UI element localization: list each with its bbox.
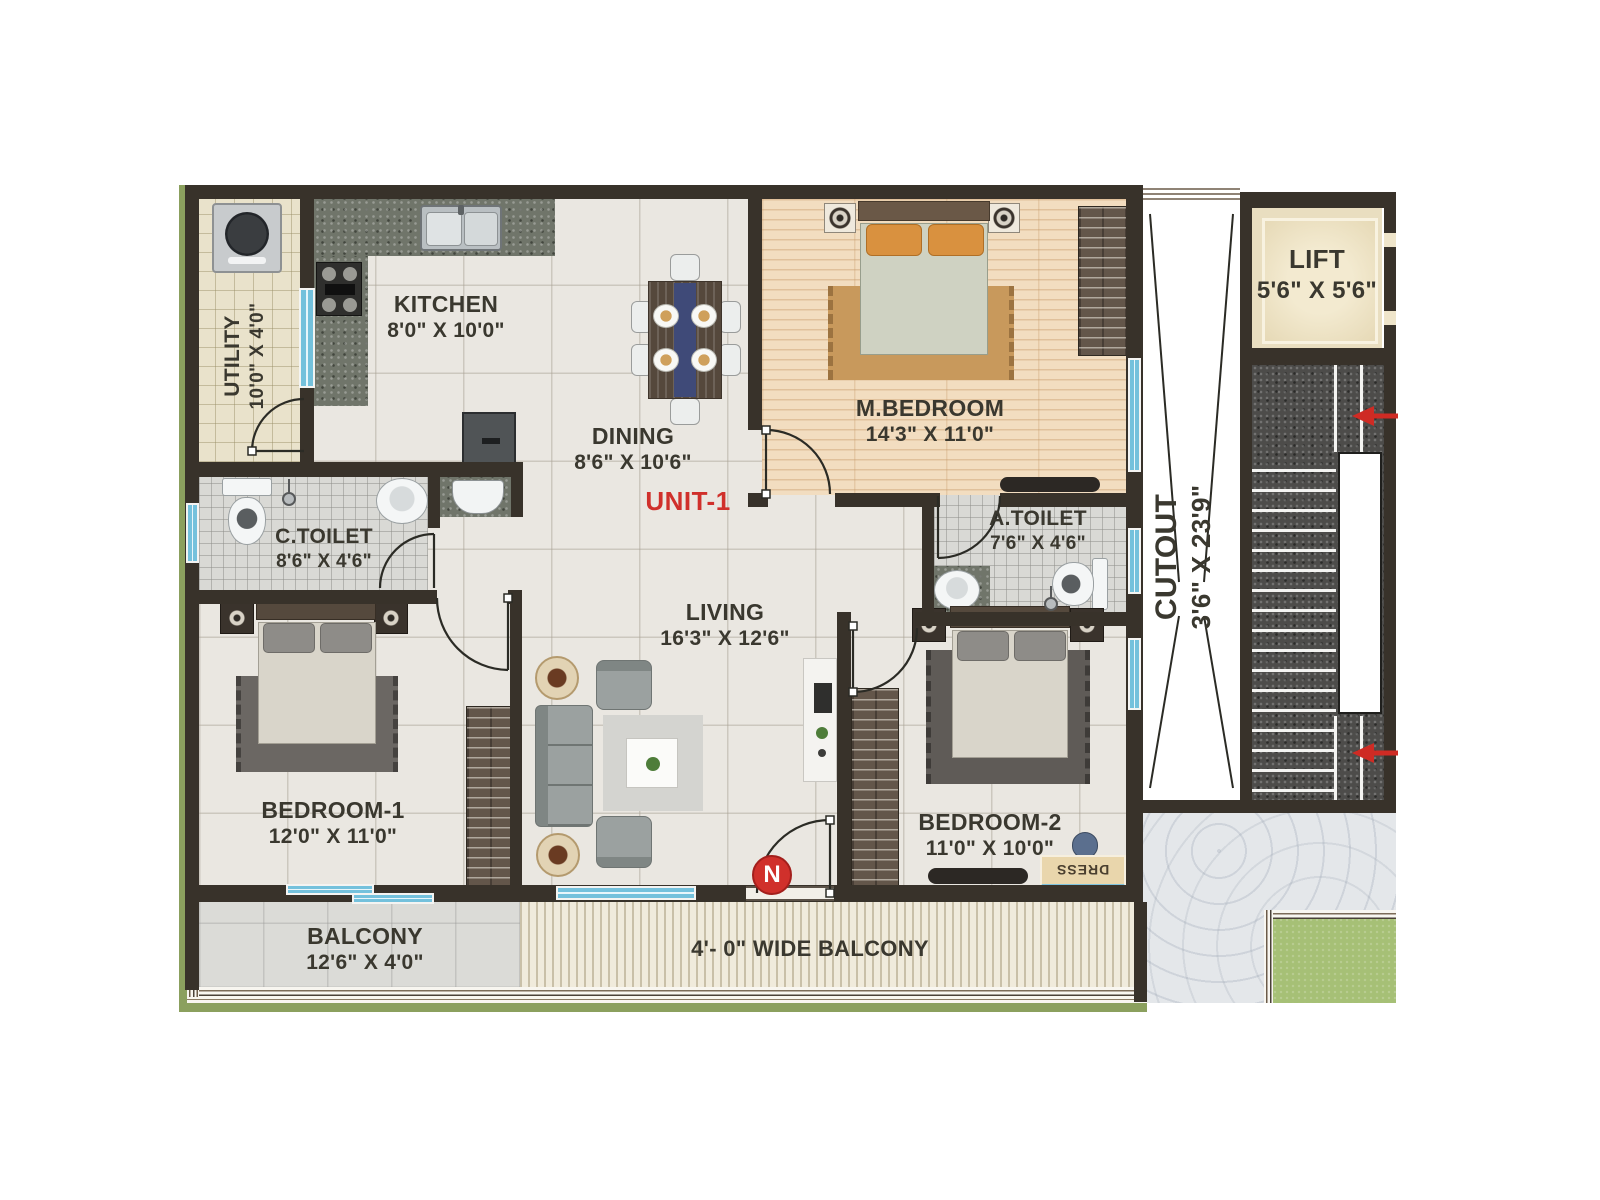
wall-block-bottom xyxy=(1143,800,1396,813)
stair-divider-line xyxy=(1334,716,1337,800)
lamp-icon xyxy=(226,607,248,629)
window-utility xyxy=(299,288,315,388)
pedestal-basin-icon xyxy=(376,478,428,524)
wall-bedroom2-top-b xyxy=(915,612,1126,626)
wall-mbedroom-bottom-c xyxy=(1000,493,1126,507)
wall-nook-right xyxy=(511,462,523,517)
plant-icon xyxy=(816,727,828,739)
wall-top xyxy=(185,185,1143,199)
stair-landing xyxy=(1338,452,1382,714)
room-dims: 11'0" X 10'0" xyxy=(880,836,1100,862)
wall-balcony-post xyxy=(1134,902,1147,1002)
burner xyxy=(343,267,357,281)
edge-green-bottom xyxy=(179,1003,1147,1012)
decor-dot xyxy=(818,749,826,757)
dining-chair xyxy=(670,254,700,281)
stair-divider-line xyxy=(1360,365,1363,452)
lamp-icon xyxy=(829,207,851,229)
north-letter: N xyxy=(763,861,780,888)
side-table xyxy=(535,656,579,700)
north-marker: N xyxy=(752,855,792,895)
pillow xyxy=(1014,631,1066,661)
window-mbedroom xyxy=(1128,358,1141,472)
pillow xyxy=(866,224,922,256)
armchair xyxy=(596,660,652,710)
wall-ctoilet-right xyxy=(428,462,440,528)
tv-unit xyxy=(803,658,837,782)
atoilet-wc-bowl xyxy=(1052,562,1094,606)
room-name: C.TOILET xyxy=(214,524,434,550)
stair-divider-line xyxy=(1334,365,1337,452)
window-living xyxy=(556,886,696,900)
room-label-utility: UTILITY 10'0" X 4'0" xyxy=(220,246,276,466)
room-label-bedroom2: BEDROOM-2 11'0" X 10'0" xyxy=(880,808,1100,862)
room-name: BEDROOM-2 xyxy=(880,808,1100,836)
room-label-attached-toilet: A.TOILET 7'6" X 4'6" xyxy=(928,506,1148,555)
window-bedroom1-b xyxy=(352,893,434,904)
room-label-dining: DINING 8'6" X 10'6" xyxy=(523,422,743,476)
room-dims: 10'0" X 4'0" xyxy=(246,246,269,466)
floor-plan: DRESS xyxy=(0,0,1600,1200)
wall-bedroom1-right xyxy=(510,590,522,902)
wardrobe xyxy=(1078,206,1128,356)
window-bedroom2 xyxy=(1128,638,1141,710)
tv-console xyxy=(1000,477,1100,492)
lamp-icon xyxy=(993,207,1015,229)
armchair xyxy=(596,816,652,868)
wall-left xyxy=(185,185,199,990)
sink-bowl xyxy=(426,212,462,246)
plate-icon xyxy=(653,304,679,328)
room-name: LIVING xyxy=(615,598,835,626)
room-label-living: LIVING 16'3" X 12'6" xyxy=(615,598,835,652)
room-name: 4'- 0" WIDE BALCONY xyxy=(650,936,970,963)
fridge-handle xyxy=(482,438,500,444)
pillow xyxy=(320,623,372,653)
plate-icon xyxy=(691,304,717,328)
lamp-icon xyxy=(380,607,402,629)
room-dims: 8'6" X 4'6" xyxy=(214,550,434,573)
wardrobe xyxy=(466,706,516,886)
toilet-wc-icon xyxy=(222,478,272,496)
burner xyxy=(322,267,336,281)
room-label-bedroom1: BEDROOM-1 12'0" X 11'0" xyxy=(223,796,443,850)
room-label-common-toilet: C.TOILET 8'6" X 4'6" xyxy=(214,524,434,573)
tv-icon xyxy=(814,683,832,713)
room-dims: 3'6" X 23'9" xyxy=(1186,387,1218,727)
wall-ctoilet-bottom xyxy=(185,590,437,604)
lawn-trim-left xyxy=(1264,910,1273,1003)
wall-lift-bottom xyxy=(1252,348,1384,365)
room-dims: 8'0" X 10'0" xyxy=(336,318,556,344)
room-label-lift: LIFT 5'6" X 5'6" xyxy=(1207,244,1427,305)
room-name: CUTOUT xyxy=(1149,387,1186,727)
room-label-master-bedroom: M.BEDROOM 14'3" X 11'0" xyxy=(810,394,1050,448)
stair-treads xyxy=(1252,452,1336,800)
atoilet-basin-icon xyxy=(934,570,980,610)
room-dims: 5'6" X 5'6" xyxy=(1207,276,1427,305)
room-dims: 12'6" X 4'0" xyxy=(255,950,475,976)
room-dims: 8'6" X 10'6" xyxy=(523,450,743,476)
dining-chair xyxy=(719,344,741,376)
room-label-wide-balcony: 4'- 0" WIDE BALCONY xyxy=(650,936,970,963)
kitchen-sink-icon xyxy=(420,205,502,251)
room-name: BEDROOM-1 xyxy=(223,796,443,824)
wall-liftblock-top xyxy=(1240,192,1396,208)
unit-label-text: UNIT-1 xyxy=(578,486,798,518)
dining-chair xyxy=(719,301,741,333)
wall-dining-mbedroom xyxy=(748,199,762,430)
coffee-table xyxy=(626,738,678,788)
room-dims: 14'3" X 11'0" xyxy=(810,422,1050,448)
sofa xyxy=(535,705,593,827)
stair-divider-line xyxy=(1360,716,1363,800)
atoilet-wc-tank xyxy=(1092,558,1108,610)
cutout-top-trim xyxy=(1143,189,1240,199)
pillow xyxy=(957,631,1009,661)
sink-faucet xyxy=(458,205,464,215)
room-label-balcony: BALCONY 12'6" X 4'0" xyxy=(255,922,475,976)
plate-icon xyxy=(653,348,679,372)
balcony-trim-bottom xyxy=(187,987,1147,1003)
unit-label: UNIT-1 xyxy=(578,486,798,518)
room-dims: 16'3" X 12'6" xyxy=(615,626,835,652)
room-name: KITCHEN xyxy=(336,290,556,318)
room-name: A.TOILET xyxy=(928,506,1148,532)
table-runner xyxy=(674,283,696,397)
wall-living-bedroom2 xyxy=(837,612,851,902)
room-name: LIFT xyxy=(1207,244,1427,276)
bed-headboard xyxy=(858,201,990,221)
side-table xyxy=(536,833,580,877)
plate-icon xyxy=(691,348,717,372)
burner xyxy=(322,298,336,312)
room-dims: 12'0" X 11'0" xyxy=(223,824,443,850)
fridge-icon xyxy=(462,412,516,468)
lawn-trim-top xyxy=(1264,910,1396,919)
room-label-kitchen: KITCHEN 8'0" X 10'0" xyxy=(336,290,556,344)
window-ctoilet xyxy=(186,503,199,563)
sink-bowl xyxy=(464,212,498,246)
room-name: M.BEDROOM xyxy=(810,394,1050,422)
lift-door-notch xyxy=(1384,311,1396,325)
plant-icon xyxy=(646,757,660,771)
pillow xyxy=(263,623,315,653)
room-label-cutout: CUTOUT 3'6" X 23'9" xyxy=(1149,387,1233,727)
dining-chair xyxy=(670,398,700,425)
bench xyxy=(928,868,1028,884)
floor-lawn xyxy=(1272,917,1396,1003)
room-name: DINING xyxy=(523,422,743,450)
room-name: UTILITY xyxy=(220,246,246,466)
room-dims: 7'6" X 4'6" xyxy=(928,532,1148,555)
pillow xyxy=(928,224,984,256)
room-name: BALCONY xyxy=(255,922,475,950)
